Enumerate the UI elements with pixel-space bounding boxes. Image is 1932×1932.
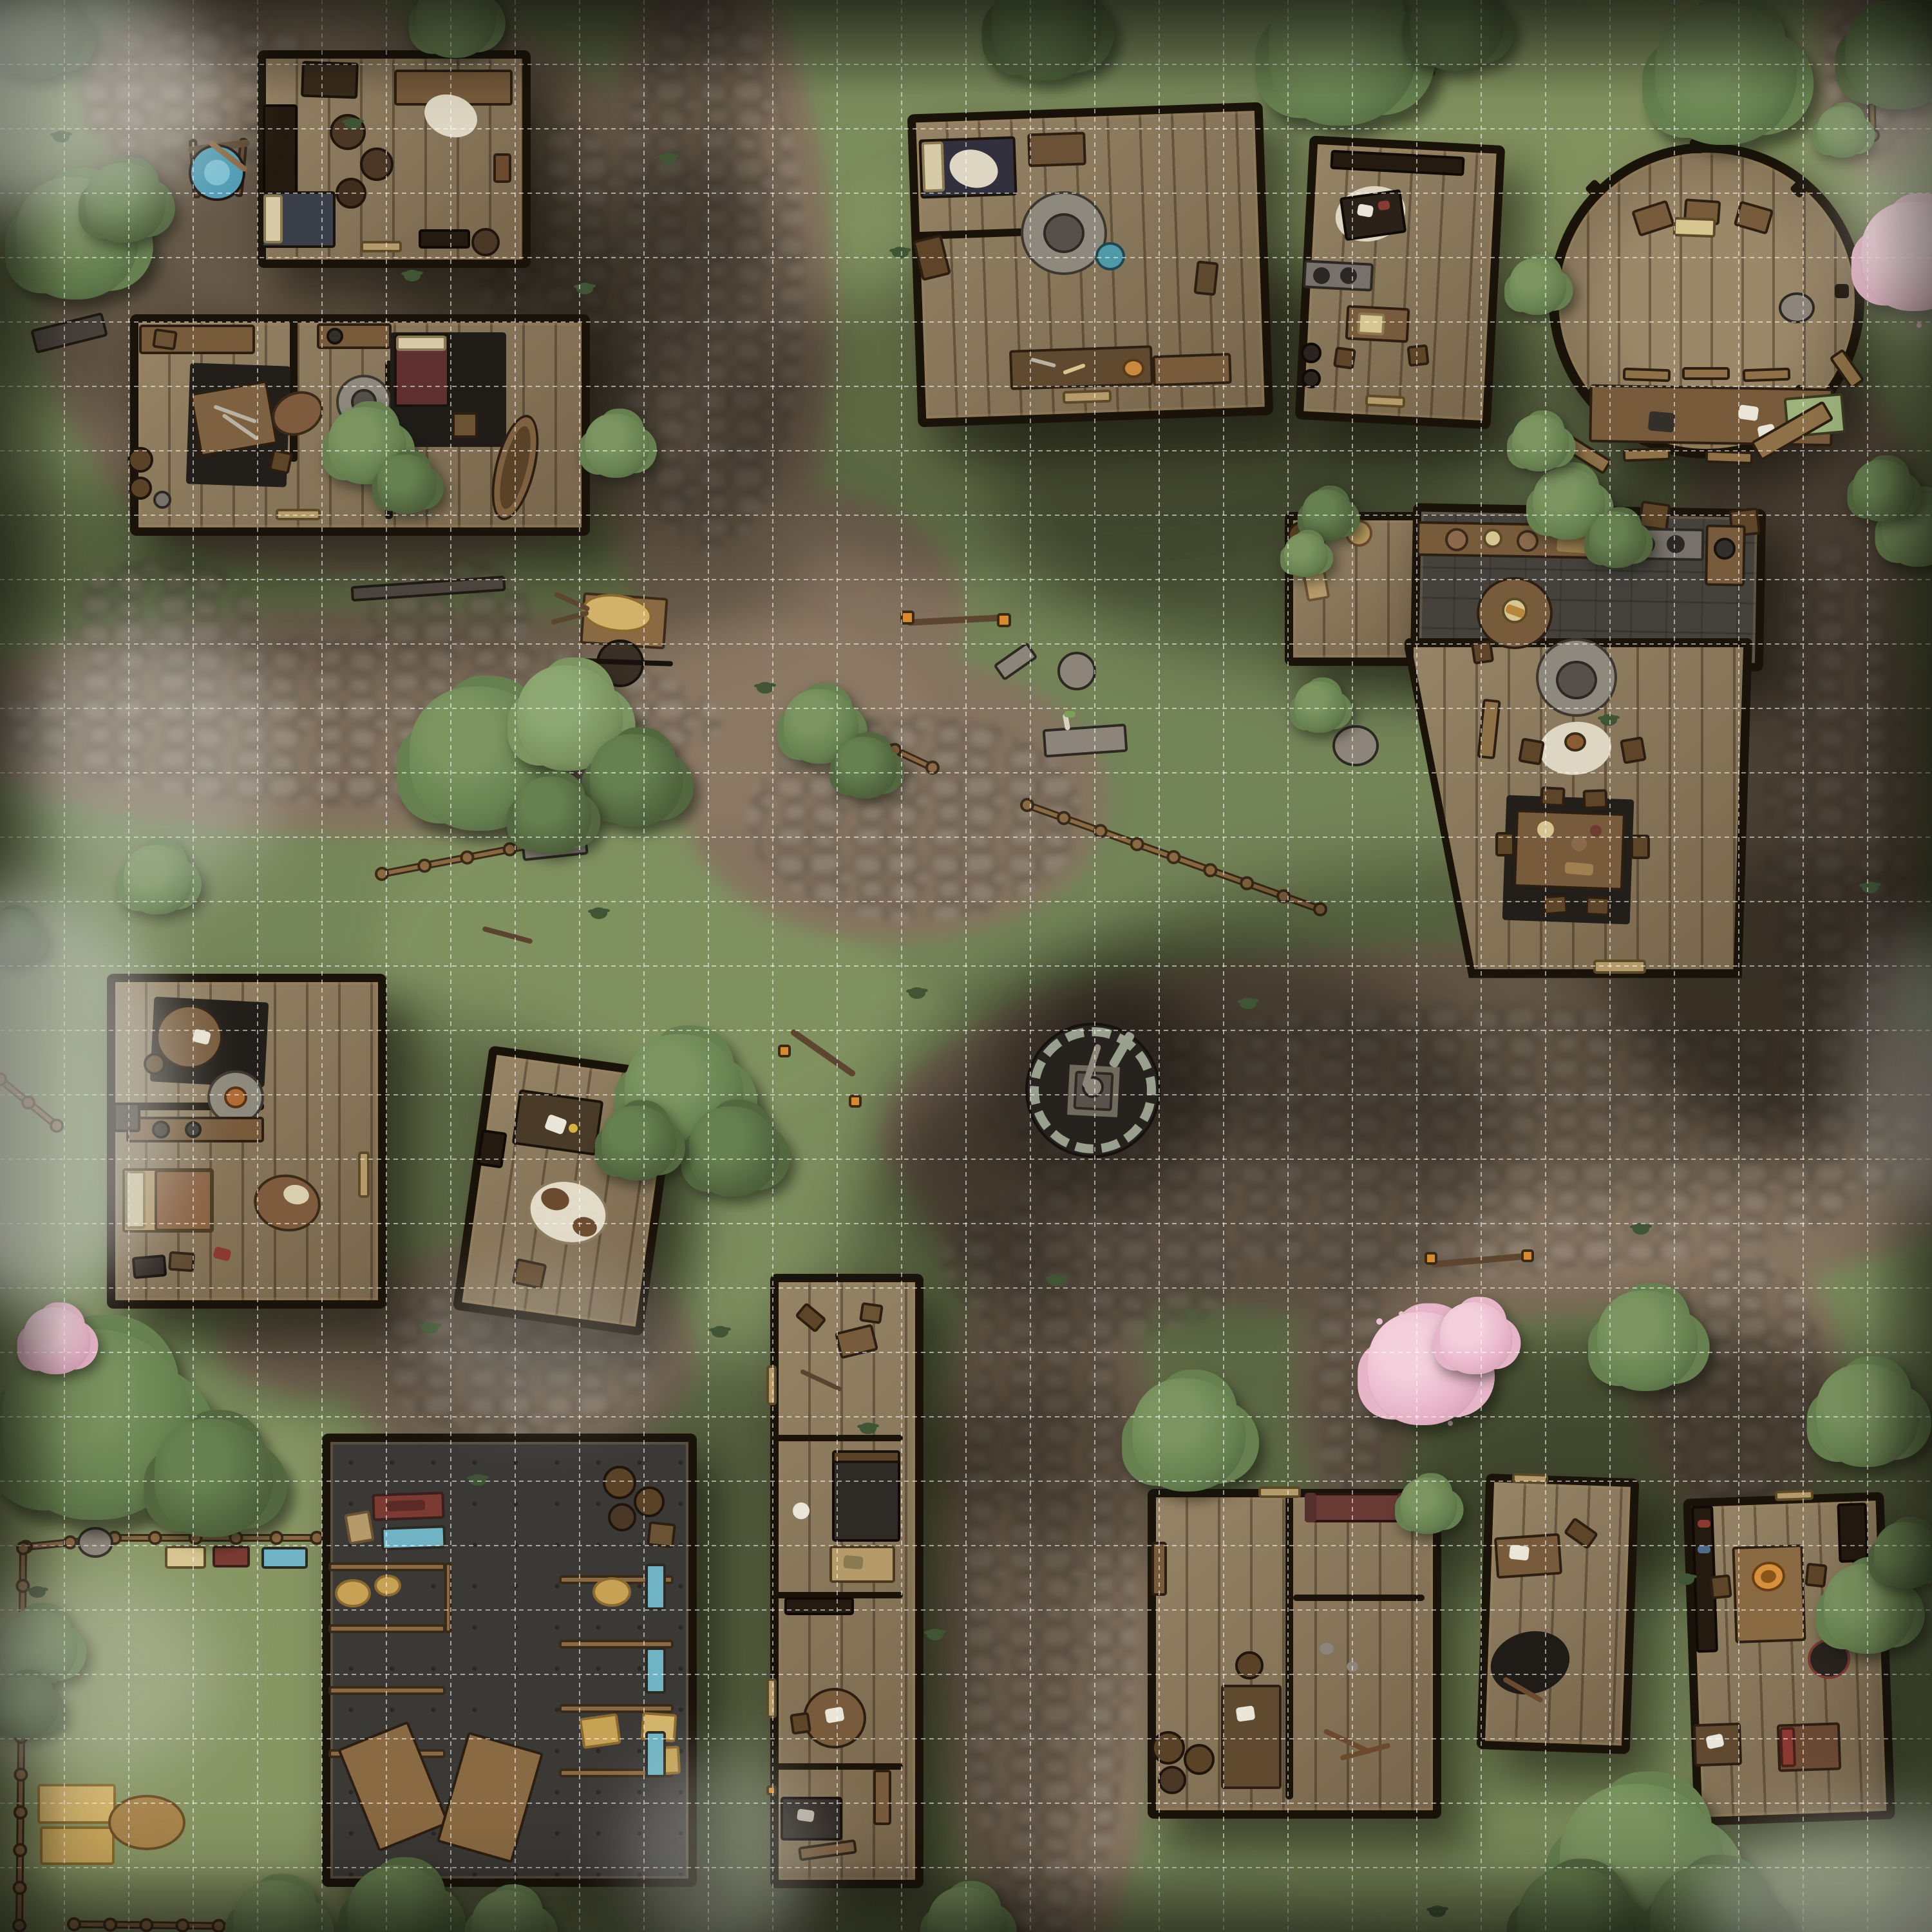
grid-overlay <box>0 0 1932 1932</box>
village-battle-map <box>0 0 1932 1932</box>
